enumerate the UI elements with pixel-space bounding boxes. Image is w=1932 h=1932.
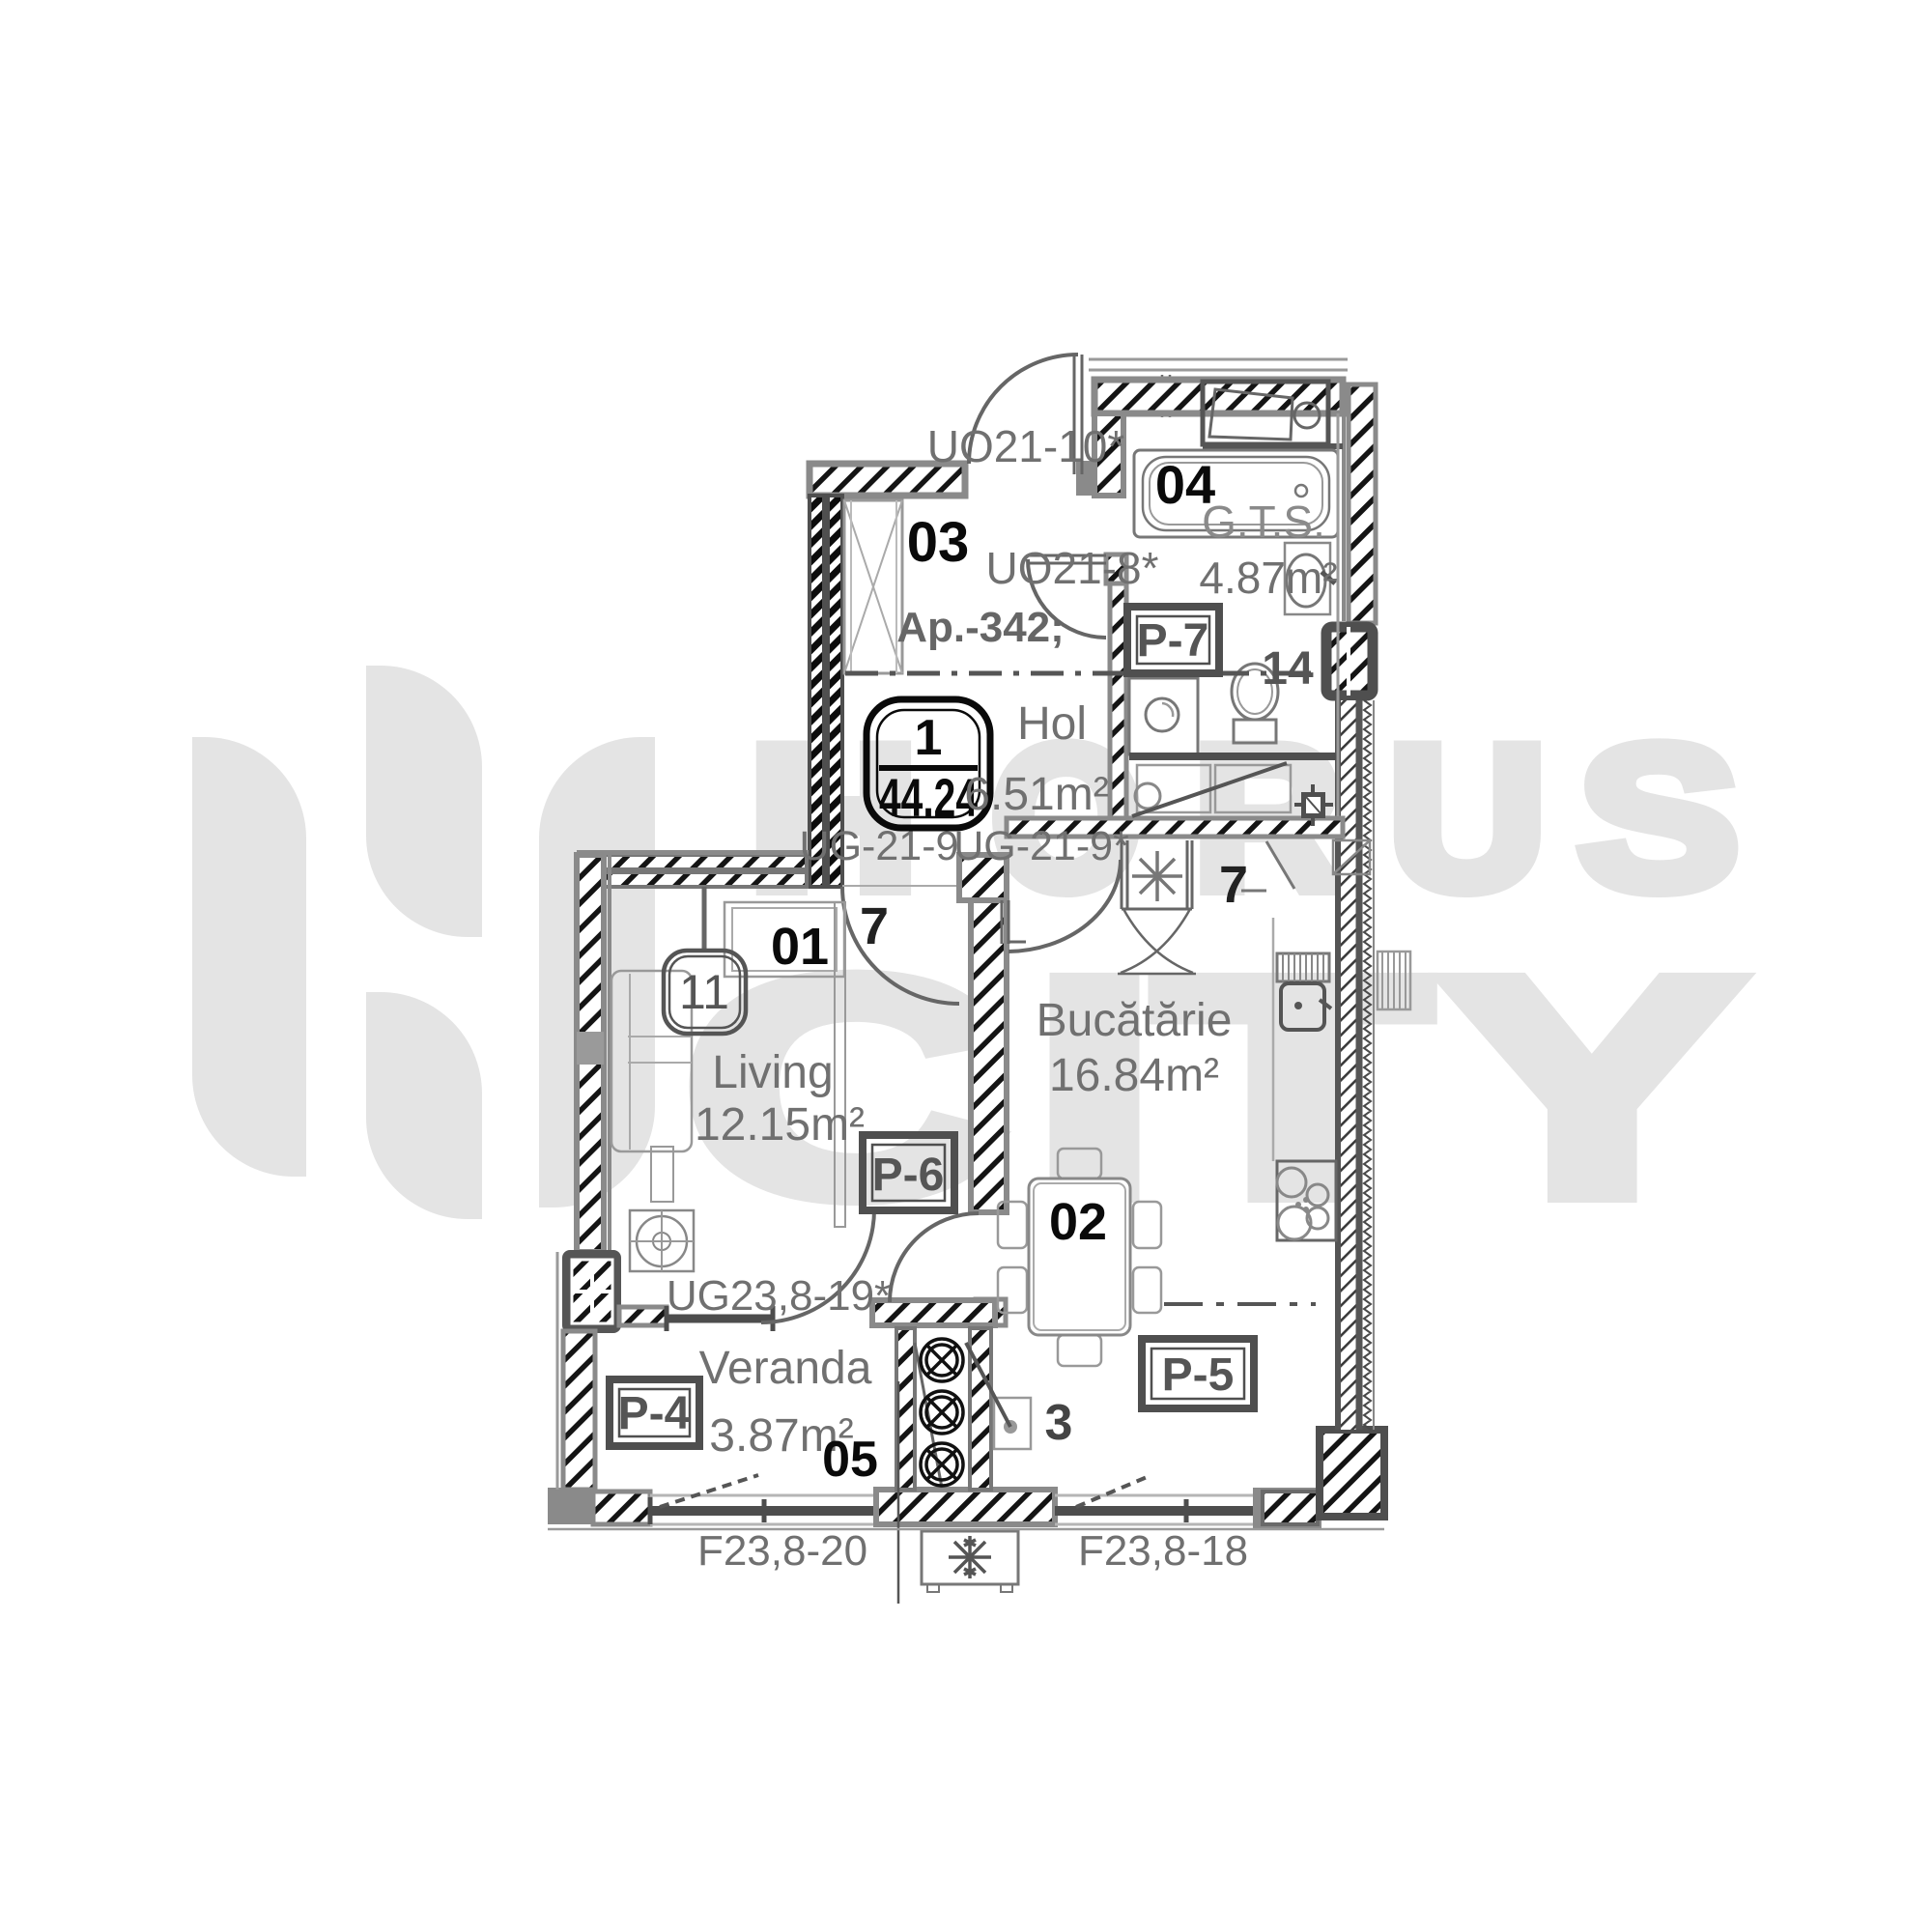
svg-text:Y: Y (1442, 915, 1741, 1260)
svg-text:UG-21-9*: UG-21-9* (953, 823, 1129, 869)
svg-text:G.T.S.: G.T.S. (1202, 497, 1325, 547)
svg-text:6.51m²: 6.51m² (964, 769, 1108, 820)
svg-text:16.84m²: 16.84m² (1049, 1050, 1219, 1101)
svg-text:11: 11 (679, 965, 729, 1019)
svg-text:U: U (1389, 705, 1546, 932)
svg-text:02: 02 (1049, 1193, 1107, 1251)
svg-text:UO21-10*: UO21-10* (927, 421, 1125, 471)
svg-text:F23,8-20: F23,8-20 (697, 1527, 867, 1575)
svg-text:Living: Living (712, 1047, 833, 1098)
svg-text:P-7: P-7 (1137, 615, 1209, 667)
svg-text:3: 3 (1045, 1395, 1073, 1451)
svg-text:12.15m²: 12.15m² (695, 1099, 865, 1151)
svg-text:P-6: P-6 (872, 1150, 945, 1201)
svg-text:4.87m²: 4.87m² (1199, 553, 1337, 603)
svg-text:05: 05 (822, 1432, 878, 1488)
svg-text:S: S (1578, 704, 1738, 931)
svg-text:03: 03 (907, 511, 970, 574)
svg-text:44.24: 44.24 (879, 767, 978, 828)
svg-text:7: 7 (1219, 856, 1248, 914)
svg-text:1: 1 (915, 710, 943, 766)
svg-text:Bucătărie: Bucătărie (1037, 995, 1233, 1046)
svg-text:P-4: P-4 (618, 1388, 691, 1439)
svg-text:UO21-8*: UO21-8* (986, 543, 1159, 593)
svg-text:P-5: P-5 (1162, 1350, 1235, 1401)
svg-text:UG-21-9: UG-21-9 (800, 823, 959, 869)
svg-text:Hol: Hol (1017, 698, 1087, 750)
svg-text:7: 7 (860, 897, 889, 955)
svg-text:14: 14 (1262, 643, 1314, 695)
svg-text:Ap.-342;: Ap.-342; (896, 604, 1065, 651)
svg-text:F23,8-18: F23,8-18 (1078, 1527, 1248, 1575)
svg-text:01: 01 (771, 918, 829, 976)
svg-text:Veranda: Veranda (699, 1343, 872, 1394)
svg-text:UG23,8-19*: UG23,8-19* (667, 1272, 891, 1320)
